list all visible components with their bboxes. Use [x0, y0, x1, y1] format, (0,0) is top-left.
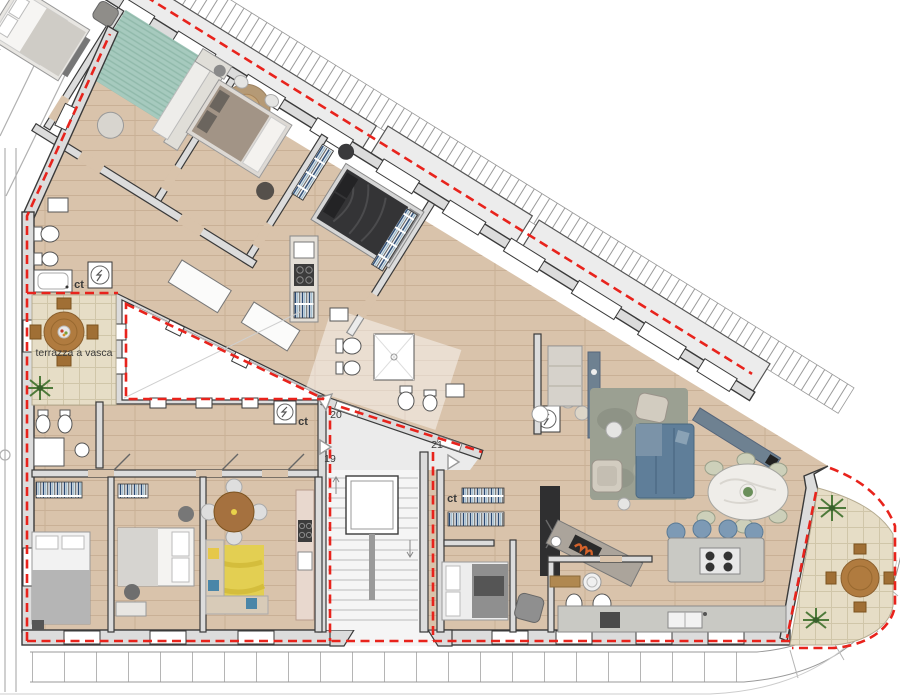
armchair [635, 392, 670, 424]
ct-label: ct [74, 279, 84, 291]
cushion [246, 598, 257, 609]
wall [444, 540, 494, 546]
washbasin [75, 443, 89, 457]
appliance [600, 612, 620, 628]
chair [854, 544, 866, 554]
chair [87, 325, 98, 339]
pouf [178, 506, 194, 522]
toilet [343, 338, 361, 354]
ct-label: ct [298, 416, 308, 428]
sink [294, 242, 314, 258]
door-gap [262, 470, 288, 477]
side-table [618, 498, 630, 510]
wardrobe [462, 488, 504, 503]
chair [854, 602, 866, 612]
side-table [606, 422, 622, 438]
bench [550, 576, 580, 587]
chaise [636, 424, 662, 456]
desk [116, 602, 146, 616]
oval-dining-set [697, 453, 788, 533]
side-table [532, 406, 548, 422]
bidet [423, 395, 437, 411]
door-gap [196, 470, 222, 477]
ct-label: ct [447, 493, 457, 505]
pillow [446, 566, 460, 590]
bidet [58, 415, 72, 433]
sink [298, 552, 312, 570]
wall [200, 477, 206, 632]
wall [510, 540, 516, 632]
cushion [208, 548, 219, 559]
stair-spine [369, 534, 375, 600]
centerpiece-plant [743, 487, 753, 497]
wall [96, 402, 103, 468]
cushion [208, 580, 219, 591]
sofa [548, 346, 582, 406]
chair [826, 572, 836, 584]
stool [693, 520, 711, 538]
elevator [346, 476, 398, 534]
blanket [32, 570, 90, 624]
door-gap [600, 556, 622, 562]
shower [34, 438, 64, 466]
nightstand [32, 620, 44, 630]
washbasin [48, 198, 68, 212]
pouf [575, 406, 589, 420]
pillow [36, 536, 58, 549]
wall [108, 477, 114, 632]
wardrobe [448, 512, 504, 526]
terrace-vasca: terrazza a vasca [27, 295, 116, 405]
toilet [41, 226, 59, 242]
floor-plan-page: terrazza a vasca ct [0, 0, 900, 700]
unit-number-21: 21 [431, 439, 443, 451]
washbasin [446, 384, 464, 397]
plant [27, 376, 53, 400]
throw [474, 576, 504, 596]
corner-sofa [206, 596, 268, 614]
palm-plant [818, 495, 846, 521]
washbasin [330, 308, 348, 321]
chair [30, 325, 41, 339]
street-edge-left [5, 148, 16, 692]
blanket [118, 528, 158, 586]
chair [884, 572, 894, 584]
wall [548, 556, 554, 632]
wall [315, 477, 322, 632]
basket [583, 573, 601, 591]
toilet [398, 392, 414, 410]
stool [719, 520, 737, 538]
shoe-rack [294, 292, 314, 318]
kitchen-20 [290, 236, 318, 322]
wardrobe [36, 482, 82, 498]
door-gap [88, 470, 114, 477]
toilet [36, 415, 50, 433]
paving-band [30, 652, 756, 682]
stair-wall-right [420, 452, 428, 632]
stove [700, 548, 740, 574]
desk-chair [124, 584, 140, 600]
pillow [62, 536, 84, 549]
bidet [42, 252, 58, 266]
bidet [344, 361, 360, 375]
pillow [446, 592, 460, 616]
floor-plan: terrazza a vasca ct [0, 0, 900, 700]
terrace-label: terrazza a vasca [35, 347, 112, 359]
chair [57, 298, 71, 309]
pillow [172, 558, 189, 582]
wardrobe [118, 484, 148, 498]
unit-number-20: 20 [330, 409, 342, 421]
round-table [841, 559, 879, 597]
pillow [172, 532, 189, 556]
